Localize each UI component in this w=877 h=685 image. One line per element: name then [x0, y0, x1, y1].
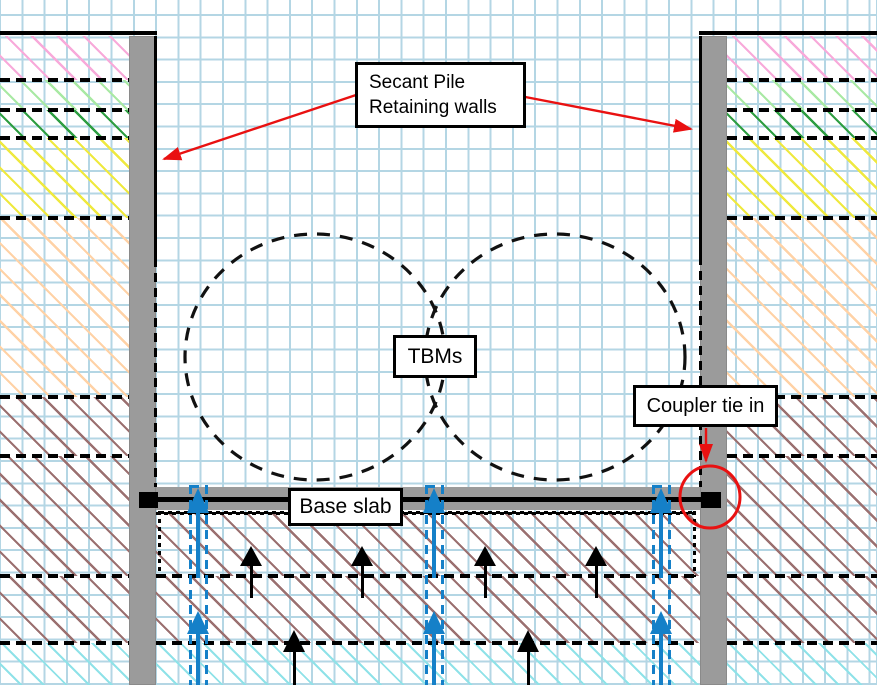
- pile-outline-right-edge: [205, 485, 208, 685]
- wall-face-dashed-line: [699, 256, 702, 487]
- label-coupler-tie-in: Coupler tie in: [633, 385, 778, 427]
- soil-layer: [727, 643, 877, 685]
- label-secant-line2: Retaining walls: [369, 95, 497, 120]
- secant-pile-wall-left: [129, 36, 156, 685]
- ground-surface-line-left: [0, 31, 157, 35]
- excavation-cross-section-diagram: Secant Pile Retaining walls TBMs Base sl…: [0, 0, 877, 685]
- layer-boundary-dashed: [0, 574, 129, 578]
- pile-uplift-arrow-lower-shaft: [432, 634, 436, 685]
- label-secant-pile-retaining-walls: Secant Pile Retaining walls: [355, 62, 526, 128]
- heave-arrow-row1-shaft: [484, 566, 487, 598]
- layer-boundary-dashed: [727, 574, 877, 578]
- pile-uplift-arrow-upper-shaft: [196, 513, 200, 578]
- pile-uplift-arrow-lower-head: [187, 611, 209, 634]
- label-tbms-text: TBMs: [408, 345, 463, 369]
- wall-face-solid-line: [154, 36, 157, 258]
- soil-layer: [0, 643, 129, 685]
- wall-face-dashed-line: [154, 258, 157, 487]
- soil-layer: [727, 36, 877, 80]
- label-tbms: TBMs: [393, 335, 477, 378]
- pile-uplift-arrow-upper-head: [423, 488, 445, 513]
- soil-strata-right: [727, 0, 877, 685]
- soil-layer: [0, 576, 129, 643]
- layer-boundary-dashed: [727, 136, 877, 140]
- soil-layer: [727, 110, 877, 138]
- pile-outline-left-edge: [652, 485, 655, 685]
- pile-uplift-arrow-lower-head: [650, 611, 672, 634]
- heave-arrow-row1-head: [585, 546, 607, 566]
- heave-arrow-row1-head: [474, 546, 496, 566]
- soil-layer: [727, 218, 877, 397]
- heave-arrow-row2-head: [517, 630, 539, 652]
- pile-uplift-arrow-upper-head: [187, 488, 209, 513]
- soil-layer: [727, 80, 877, 110]
- pile-uplift-arrow-upper-shaft: [432, 513, 436, 578]
- layer-boundary-dashed: [0, 641, 129, 645]
- soil-layer: [727, 576, 877, 643]
- soil-strata-left: [0, 0, 129, 685]
- under-slab-dotted-stub-right: [693, 511, 696, 577]
- layer-boundary-dashed: [727, 216, 877, 220]
- layer-boundary-dashed: [727, 108, 877, 112]
- soil-layer: [156, 643, 700, 685]
- label-secant-line1: Secant Pile: [369, 70, 465, 95]
- layer-boundary-dashed: [0, 216, 129, 220]
- pile-uplift-arrow-upper-shaft: [659, 513, 663, 578]
- pile-uplift-arrow-lower-shaft: [196, 634, 200, 685]
- layer-boundary-dashed: [0, 136, 129, 140]
- layer-boundary-dashed: [0, 108, 129, 112]
- soil-layer: [0, 138, 129, 218]
- heave-arrow-row1-shaft: [595, 566, 598, 598]
- heave-arrow-row1-head: [240, 546, 262, 566]
- pile-outline-left-edge: [425, 485, 428, 685]
- soil-layer: [727, 456, 877, 576]
- pile-uplift-arrow-lower-shaft: [659, 634, 663, 685]
- layer-boundary-dashed: [727, 78, 877, 82]
- layer-boundary-dashed: [156, 641, 700, 645]
- under-slab-dotted-stub-left: [158, 511, 161, 577]
- pile-outline-left-edge: [189, 485, 192, 685]
- heave-arrow-row2-shaft: [293, 652, 296, 685]
- label-coupler-text: Coupler tie in: [647, 395, 765, 418]
- soil-layer: [727, 138, 877, 218]
- layer-boundary-dashed: [0, 78, 129, 82]
- ground-surface-line-right: [699, 31, 877, 35]
- pile-uplift-arrow-upper-head: [650, 488, 672, 513]
- layer-boundary-dashed: [156, 574, 700, 578]
- wall-face-solid-line: [699, 36, 702, 256]
- soil-layer: [0, 397, 129, 456]
- soil-layer: [0, 456, 129, 576]
- heave-arrow-row1-shaft: [250, 566, 253, 598]
- heave-arrow-row1-head: [351, 546, 373, 566]
- pile-outline-right-edge: [668, 485, 671, 685]
- coupler-block-left: [139, 492, 158, 508]
- layer-boundary-dashed: [727, 454, 877, 458]
- soil-layer: [0, 80, 129, 110]
- heave-arrow-row2-head: [283, 630, 305, 652]
- pile-uplift-arrow-lower-head: [423, 611, 445, 634]
- soil-layer: [0, 218, 129, 397]
- layer-boundary-dashed: [727, 641, 877, 645]
- layer-boundary-dashed: [0, 454, 129, 458]
- label-base-slab-text: Base slab: [299, 495, 391, 519]
- soil-layer: [0, 110, 129, 138]
- heave-arrow-row2-shaft: [527, 652, 530, 685]
- layer-boundary-dashed: [0, 395, 129, 399]
- heave-arrow-row1-shaft: [361, 566, 364, 598]
- pile-outline-right-edge: [441, 485, 444, 685]
- secant-pile-wall-right: [700, 36, 727, 685]
- label-base-slab: Base slab: [288, 488, 403, 526]
- soil-layer: [156, 513, 700, 576]
- coupler-block-right: [701, 492, 721, 508]
- soil-layer: [0, 36, 129, 80]
